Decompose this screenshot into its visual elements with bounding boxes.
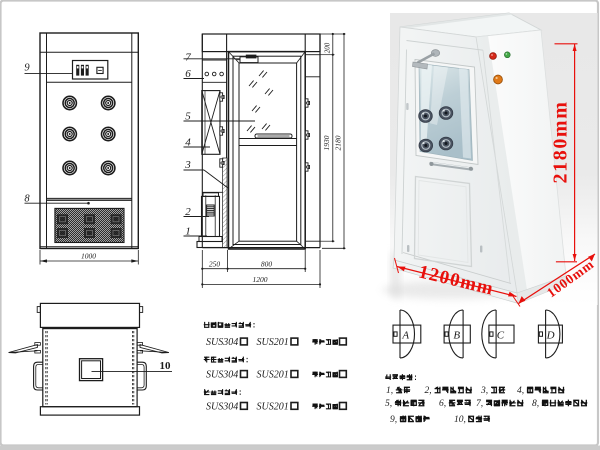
svg-text:SUS304: SUS304: [206, 370, 238, 381]
svg-text:10: 10: [160, 360, 172, 372]
svg-text:1: 1: [185, 225, 191, 237]
svg-text:2: 2: [185, 206, 191, 218]
svg-text:200: 200: [324, 42, 332, 53]
svg-text:B: B: [453, 330, 460, 342]
svg-text:D: D: [546, 330, 555, 342]
svg-text:2180: 2180: [334, 135, 343, 150]
svg-text:7,: 7,: [476, 399, 483, 409]
svg-text:C: C: [497, 330, 505, 342]
svg-text:9,: 9,: [390, 415, 397, 425]
svg-text:1000: 1000: [81, 252, 96, 261]
svg-text:10,: 10,: [454, 415, 466, 425]
svg-text:1930: 1930: [322, 135, 331, 150]
svg-text:4,: 4,: [517, 386, 524, 396]
svg-text:7: 7: [185, 51, 191, 63]
svg-text:SUS201: SUS201: [257, 337, 289, 348]
svg-text:800: 800: [261, 259, 273, 268]
svg-text:SUS201: SUS201: [257, 401, 289, 412]
svg-text:3,: 3,: [480, 386, 488, 396]
svg-text:A: A: [401, 330, 409, 342]
svg-text:1200: 1200: [253, 275, 268, 284]
svg-text:9: 9: [24, 63, 30, 74]
svg-text:5,: 5,: [385, 399, 392, 409]
svg-text:2,: 2,: [425, 386, 432, 396]
svg-text:SUS201: SUS201: [257, 370, 289, 381]
svg-text:1,: 1,: [386, 386, 393, 396]
svg-text:SUS304: SUS304: [206, 401, 238, 412]
svg-text:8,: 8,: [532, 399, 539, 409]
svg-text:3: 3: [184, 159, 191, 171]
svg-text:SUS304: SUS304: [206, 337, 238, 348]
svg-text:6,: 6,: [439, 399, 446, 409]
svg-text:2180mm: 2180mm: [550, 101, 572, 184]
svg-text:250: 250: [209, 259, 221, 268]
